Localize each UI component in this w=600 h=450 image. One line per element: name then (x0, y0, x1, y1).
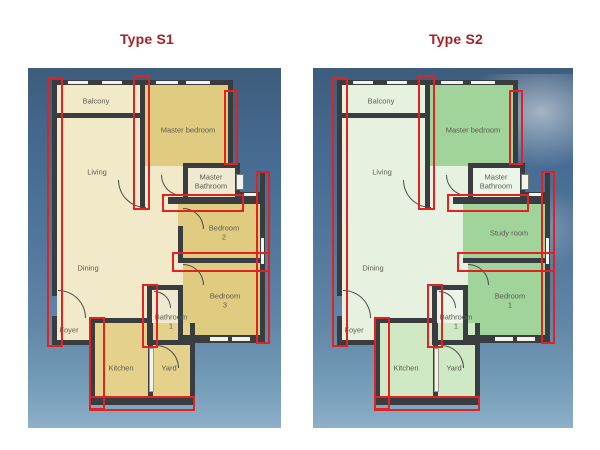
label-kitchen: Kitchen (393, 363, 418, 372)
label-living: Living (87, 167, 107, 176)
window (517, 337, 535, 341)
highlight-box (224, 90, 238, 165)
window (102, 81, 122, 84)
floorplan-panel-s2: Balcony Living Master bedroom Master Bat… (313, 68, 573, 428)
label-dining: Dining (77, 263, 98, 272)
plan-title-s2: Type S2 (371, 31, 541, 47)
label-master-bedroom: Master bedroom (161, 125, 216, 134)
label-bedroom2: Bedroom 2 (209, 224, 239, 243)
highlight-box (447, 194, 529, 212)
window (210, 337, 228, 341)
window (441, 81, 463, 84)
highlight-box (509, 90, 523, 165)
label-bathroom1: Bathroom 1 (440, 313, 473, 332)
window (387, 81, 407, 84)
window (68, 81, 88, 84)
floorplan-comparison-page: { "plans": { "s1": { "title": "Type S1",… (0, 0, 600, 450)
window (186, 81, 210, 84)
window (244, 193, 256, 196)
window (495, 337, 513, 341)
highlight-box (172, 252, 270, 272)
highlight-box (47, 77, 63, 347)
label-balcony: Balcony (368, 96, 395, 105)
highlight-box (427, 284, 443, 348)
label-master-bathroom: Master Bathroom (195, 173, 228, 192)
floorplan-panel-s1: Balcony Living Master bedroom Master Bat… (28, 68, 281, 428)
plan-title-s1: Type S1 (62, 31, 232, 47)
wall (57, 113, 140, 118)
label-yard: Yard (161, 363, 176, 372)
window (353, 81, 373, 84)
label-master-bathroom: Master Bathroom (480, 173, 513, 192)
label-study-room: Study room (490, 228, 528, 237)
wall (475, 323, 480, 405)
label-dining: Dining (362, 263, 383, 272)
highlight-box (374, 396, 480, 411)
label-balcony: Balcony (83, 96, 110, 105)
wall (190, 323, 195, 405)
window (232, 337, 250, 341)
window (529, 193, 541, 196)
label-bedroom3: Bedroom 3 (210, 292, 240, 311)
window (521, 174, 529, 190)
highlight-box (418, 75, 435, 210)
highlight-box (457, 252, 555, 272)
label-bathroom1: Bathroom 1 (155, 313, 188, 332)
louvered-door (434, 348, 439, 392)
label-kitchen: Kitchen (108, 363, 133, 372)
highlight-box (89, 396, 195, 411)
window (156, 81, 178, 84)
label-yard: Yard (446, 363, 461, 372)
highlight-box (332, 77, 348, 347)
label-master-bedroom: Master bedroom (446, 125, 501, 134)
wall (342, 113, 425, 118)
highlight-box (162, 194, 244, 212)
window (471, 81, 495, 84)
label-living: Living (372, 167, 392, 176)
label-bedroom1: Bedroom 1 (495, 292, 525, 311)
louvered-door (149, 348, 154, 392)
highlight-box (142, 284, 158, 348)
highlight-box (133, 75, 150, 210)
window (236, 174, 244, 190)
